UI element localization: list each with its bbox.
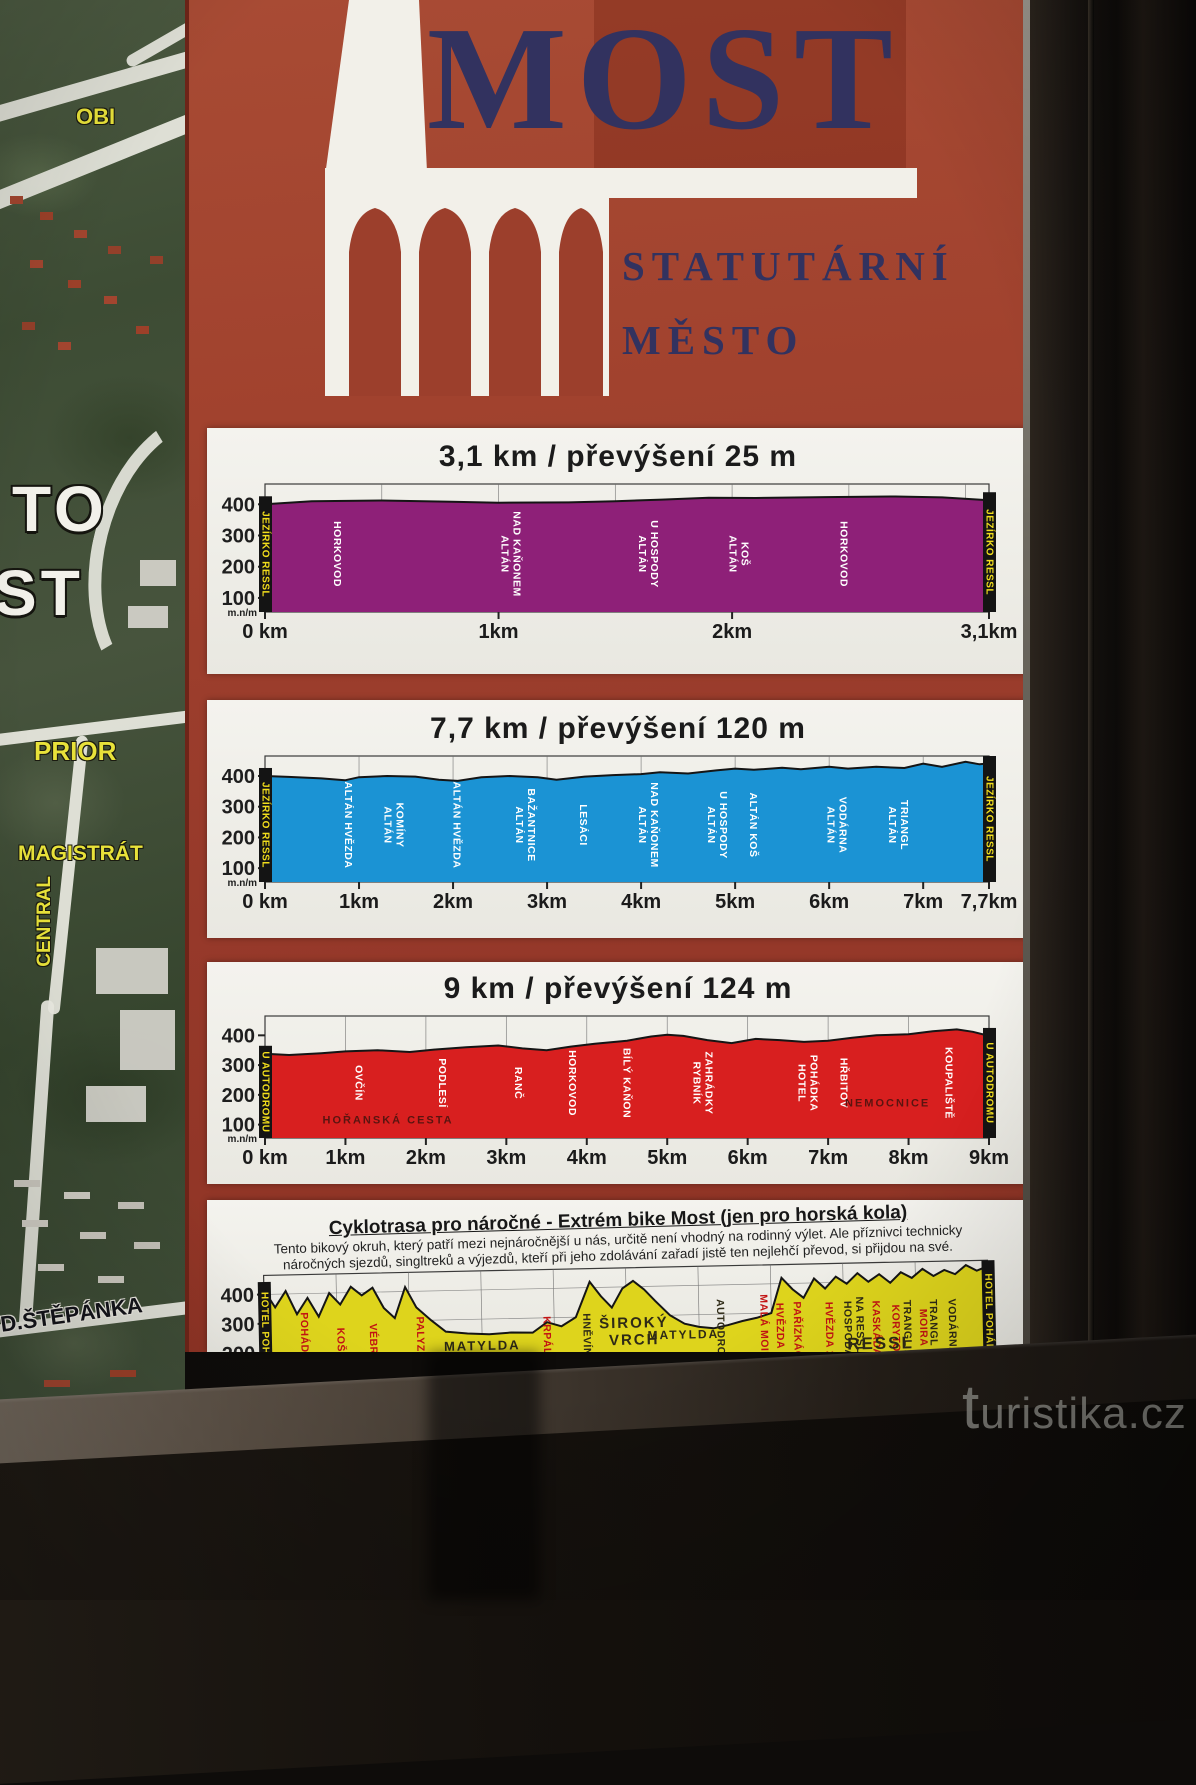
svg-text:4km: 4km	[621, 891, 661, 913]
map-building	[96, 948, 168, 994]
svg-text:NAD KAŇONEM: NAD KAŇONEM	[648, 782, 661, 867]
map-label-central: CENTRAL	[34, 876, 56, 967]
svg-text:NAD KAŇONEM: NAD KAŇONEM	[511, 511, 524, 596]
svg-text:RESSL: RESSL	[847, 1333, 914, 1352]
svg-text:200: 200	[222, 557, 255, 579]
svg-text:0 km: 0 km	[242, 621, 288, 643]
svg-text:HVĚZDA 2: HVĚZDA 2	[822, 1302, 836, 1352]
svg-text:8km: 8km	[889, 1147, 929, 1169]
svg-text:ALTÁN: ALTÁN	[636, 806, 649, 843]
svg-text:m.n/m: m.n/m	[228, 608, 258, 619]
svg-text:300: 300	[222, 526, 255, 548]
svg-text:PALYZA: PALYZA	[414, 1316, 427, 1352]
svg-text:PAŘÍZKÁČ: PAŘÍZKÁČ	[791, 1301, 805, 1352]
svg-text:300: 300	[221, 1314, 255, 1337]
svg-text:ALTÁN HVĚZDA: ALTÁN HVĚZDA	[342, 782, 355, 869]
elevation-chart-card-blue: 7,7 km / převýšení 120 m 400300200100m.n…	[207, 700, 1029, 938]
svg-text:2km: 2km	[433, 891, 473, 913]
svg-text:200: 200	[222, 1343, 256, 1352]
svg-text:HOTEL: HOTEL	[796, 1064, 808, 1102]
svg-text:ALTÁN: ALTÁN	[636, 535, 649, 572]
svg-text:200: 200	[222, 827, 255, 849]
map-label-magistrat: MAGISTRÁT	[18, 842, 143, 866]
elevation-chart-red: 400300200100m.n/m0 km1km2km3km4km5km6km7…	[215, 1010, 1021, 1168]
svg-text:ALTÁN: ALTÁN	[513, 806, 526, 843]
svg-text:KOŠ: KOŠ	[739, 542, 752, 566]
svg-text:ALTÁN: ALTÁN	[886, 806, 899, 843]
svg-text:KRPÁL: KRPÁL	[540, 1316, 554, 1352]
svg-text:4km: 4km	[567, 1147, 607, 1169]
svg-text:2km: 2km	[406, 1147, 446, 1169]
svg-text:HVĚZDA 1: HVĚZDA 1	[773, 1303, 787, 1352]
svg-text:ALTÁN: ALTÁN	[705, 806, 718, 843]
svg-text:RYBNÍK: RYBNÍK	[691, 1062, 704, 1105]
elevation-chart-blue: 400300200100m.n/m0 km1km2km3km4km5km6km7…	[215, 750, 1021, 912]
svg-text:TRANGL 2: TRANGL 2	[927, 1299, 940, 1352]
wood-post-shadow	[428, 1352, 540, 1600]
svg-text:m.n/m: m.n/m	[228, 1134, 258, 1145]
svg-text:JEZÍRKO RESSL: JEZÍRKO RESSL	[984, 776, 997, 862]
svg-text:ZAHRÁDKY: ZAHRÁDKY	[703, 1052, 716, 1115]
svg-text:U AUTODROMU: U AUTODROMU	[984, 1042, 995, 1123]
chart-title: 7,7 km / převýšení 120 m	[207, 712, 1029, 746]
svg-text:TRIANGL: TRIANGL	[898, 800, 910, 850]
svg-text:MALÁ MOIRA: MALÁ MOIRA	[757, 1294, 772, 1352]
svg-text:3km: 3km	[527, 891, 567, 913]
svg-text:7,7km: 7,7km	[961, 891, 1018, 913]
elevation-chart-extreme: 400300200100m.n/mHOTEL POHÁDKAHOTEL POHÁ…	[214, 1256, 1023, 1352]
svg-text:VODÁRNA: VODÁRNA	[946, 1299, 960, 1352]
map-label-obi: OBI	[76, 104, 115, 130]
svg-text:KOŠ: KOŠ	[334, 1328, 348, 1352]
svg-text:U AUTODROMU: U AUTODROMU	[260, 1051, 271, 1132]
svg-text:100: 100	[222, 588, 255, 610]
svg-text:5km: 5km	[647, 1147, 687, 1169]
svg-text:HORKOVOD: HORKOVOD	[331, 521, 343, 587]
map-label-cut-text-st: ST	[0, 556, 84, 630]
svg-text:KOMÍNY: KOMÍNY	[393, 803, 406, 848]
svg-text:RANČ: RANČ	[512, 1067, 525, 1099]
svg-text:BAŽANTNICE: BAŽANTNICE	[525, 788, 538, 861]
svg-text:3,1km: 3,1km	[961, 621, 1018, 643]
map-building	[128, 606, 168, 628]
svg-text:POHÁDKA: POHÁDKA	[298, 1312, 312, 1352]
svg-text:ALTÁN: ALTÁN	[727, 535, 740, 572]
svg-text:JEZÍRKO RESSL: JEZÍRKO RESSL	[984, 509, 997, 595]
svg-text:400: 400	[220, 1285, 254, 1308]
svg-text:POHÁDKA: POHÁDKA	[808, 1055, 821, 1112]
map-houses	[14, 1180, 40, 1187]
svg-text:ALTÁN KOŠ: ALTÁN KOŠ	[747, 793, 760, 858]
svg-text:100: 100	[222, 858, 255, 880]
map-building	[140, 560, 176, 586]
wood-shadow	[0, 1394, 1196, 1785]
svg-text:MATYLDA: MATYLDA	[444, 1337, 521, 1352]
svg-text:6km: 6km	[809, 891, 849, 913]
map-red-roofs	[10, 196, 23, 204]
svg-text:m.n/m: m.n/m	[228, 878, 258, 889]
svg-text:400: 400	[222, 494, 255, 516]
svg-text:HNĚVÍN: HNĚVÍN	[580, 1313, 594, 1352]
svg-text:KOUPALIŠTĚ: KOUPALIŠTĚ	[943, 1047, 956, 1119]
elevation-chart-card-extreme: Cyklotrasa pro náročné - Extrém bike Mos…	[207, 1200, 1029, 1352]
svg-text:1km: 1km	[479, 621, 519, 643]
chart-title: 3,1 km / převýšení 25 m	[207, 440, 1029, 474]
elevation-chart-card-red: 9 km / převýšení 124 m 400300200100m.n/m…	[207, 962, 1029, 1184]
aerial-map: OBI PRIOR MAGISTRÁT CENTRAL D.ŠTĚPÁNKA T…	[0, 0, 185, 1460]
map-building	[120, 1010, 175, 1070]
sign-city-name: MOST	[427, 4, 903, 154]
map-label-prior: PRIOR	[34, 736, 116, 767]
svg-text:1km: 1km	[325, 1147, 365, 1169]
svg-text:NEMOCNICE: NEMOCNICE	[845, 1097, 930, 1109]
svg-text:PODLESÍ: PODLESÍ	[436, 1058, 449, 1108]
svg-text:5km: 5km	[715, 891, 755, 913]
map-road	[19, 1000, 55, 1330]
svg-text:U HOSPODY: U HOSPODY	[717, 791, 729, 859]
turistika-watermark: turistika.cz	[962, 1372, 1196, 1443]
svg-text:6km: 6km	[728, 1147, 768, 1169]
svg-text:9km: 9km	[969, 1147, 1009, 1169]
svg-text:U HOSPODY: U HOSPODY	[648, 520, 660, 588]
svg-text:JEZÍRKO RESSL: JEZÍRKO RESSL	[260, 782, 273, 868]
svg-text:OVČÍN: OVČÍN	[353, 1065, 366, 1101]
svg-text:300: 300	[222, 1055, 255, 1077]
svg-text:400: 400	[222, 766, 255, 788]
svg-text:LESÁCI: LESÁCI	[577, 804, 590, 846]
svg-text:VÉBR: VÉBR	[367, 1323, 381, 1352]
svg-text:ALTÁN: ALTÁN	[824, 806, 837, 843]
map-building	[86, 1086, 146, 1122]
svg-text:JEZÍRKO RESSL: JEZÍRKO RESSL	[260, 511, 273, 597]
svg-text:BÍLÝ KAŇON: BÍLÝ KAŇON	[621, 1048, 634, 1118]
svg-text:MATYLDA: MATYLDA	[647, 1327, 719, 1343]
svg-text:HORKOVOD: HORKOVOD	[838, 521, 850, 587]
svg-text:AUTODROM: AUTODROM	[714, 1299, 727, 1352]
svg-text:ALTÁN HVĚZDA: ALTÁN HVĚZDA	[450, 782, 463, 869]
svg-text:VODÁRNA: VODÁRNA	[836, 797, 849, 854]
svg-text:HORKOVOD: HORKOVOD	[566, 1050, 578, 1116]
svg-text:200: 200	[222, 1085, 255, 1107]
svg-text:0 km: 0 km	[242, 891, 288, 913]
svg-text:2km: 2km	[712, 621, 752, 643]
svg-text:HOŘANSKÁ CESTA: HOŘANSKÁ CESTA	[323, 1113, 454, 1126]
info-sign: MOST STATUTÁRNÍ MĚSTO 3,1 km / převýšení…	[185, 0, 1032, 1352]
svg-text:300: 300	[222, 797, 255, 819]
svg-text:0 km: 0 km	[242, 1147, 288, 1169]
sign-subtitle-line1: STATUTÁRNÍ	[622, 242, 955, 290]
svg-text:7km: 7km	[903, 891, 943, 913]
elevation-chart-purple: 400300200100m.n/m0 km1km2km3,1kmJEZÍRKO …	[215, 478, 1021, 642]
photo-of-trail-info-board: OBI PRIOR MAGISTRÁT CENTRAL D.ŠTĚPÁNKA T…	[0, 0, 1196, 1600]
elevation-chart-card-purple: 3,1 km / převýšení 25 m 400300200100m.n/…	[207, 428, 1029, 674]
chart-title: 9 km / převýšení 124 m	[207, 972, 1029, 1006]
svg-text:ALTÁN: ALTÁN	[381, 806, 394, 843]
svg-text:1km: 1km	[339, 891, 379, 913]
map-label-cut-text-to: TO	[12, 472, 108, 546]
svg-text:ALTÁN: ALTÁN	[499, 535, 512, 572]
sign-subtitle-line2: MĚSTO	[622, 316, 804, 364]
svg-text:7km: 7km	[808, 1147, 848, 1169]
svg-text:3km: 3km	[486, 1147, 526, 1169]
svg-text:400: 400	[222, 1025, 255, 1047]
